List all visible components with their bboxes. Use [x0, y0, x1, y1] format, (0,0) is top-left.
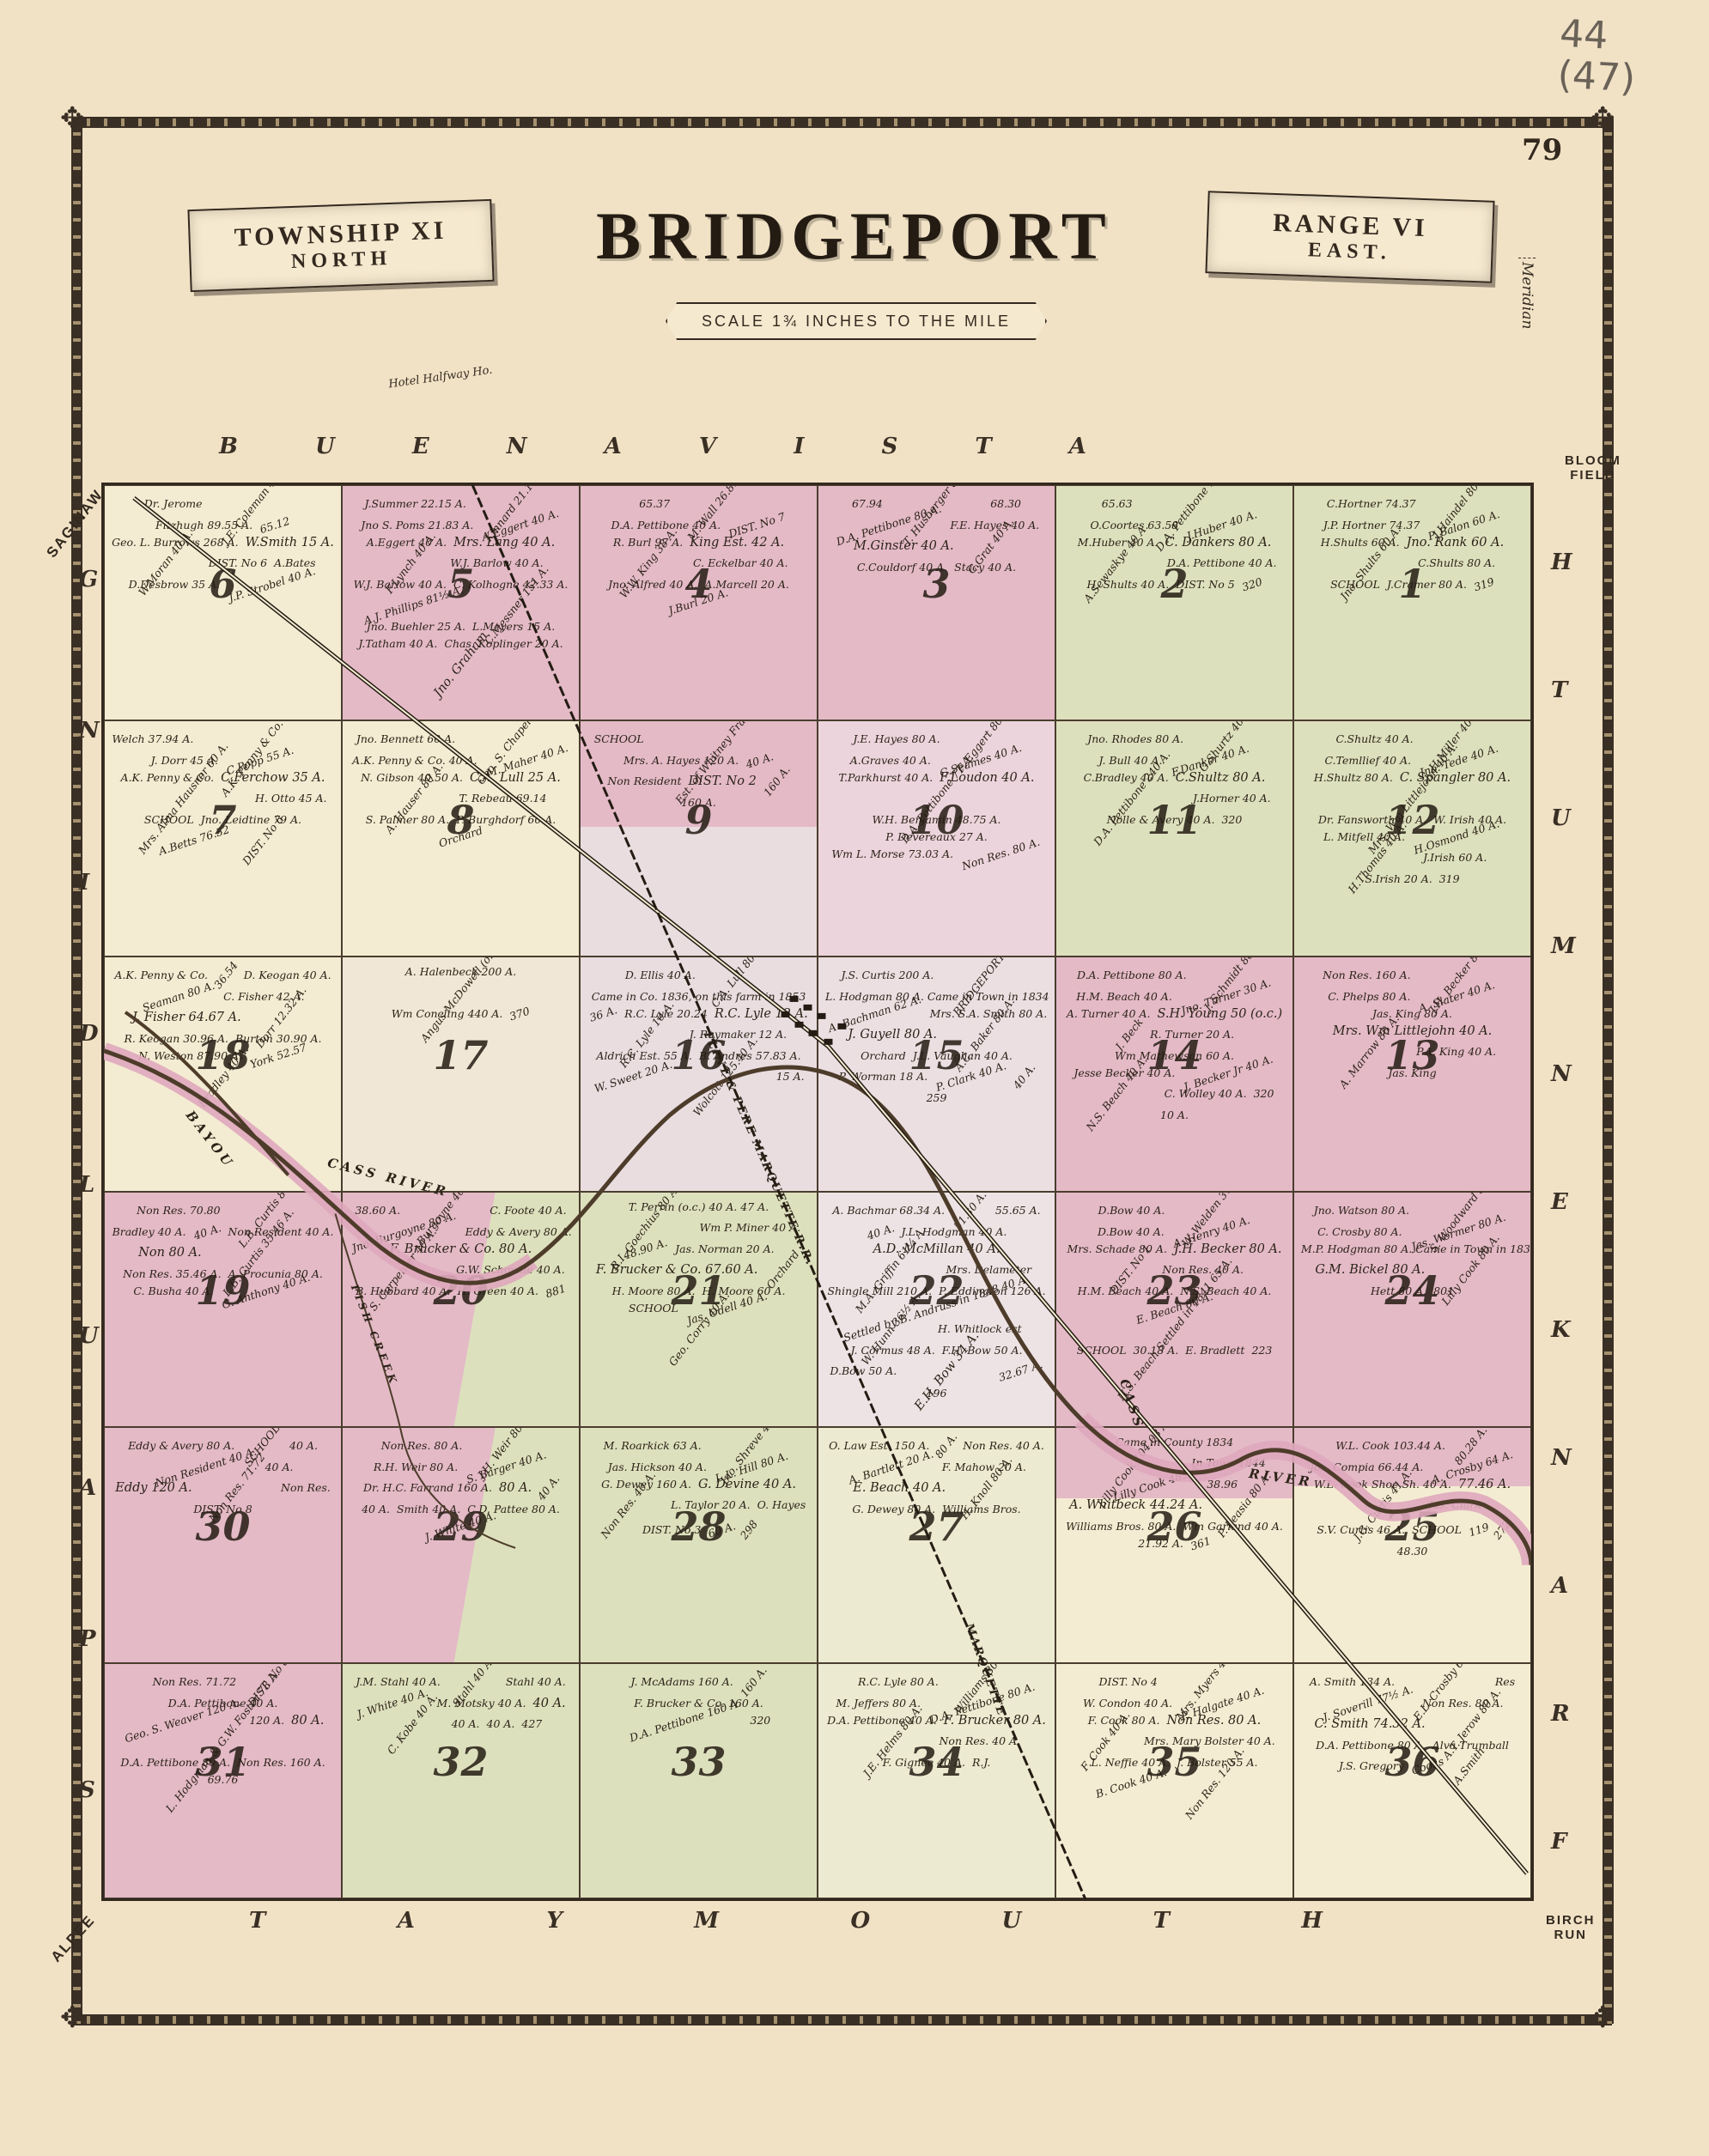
- parcel-label: S. Barger 40 A.: [465, 1448, 548, 1486]
- parcel-label: C.Shultz 40 A.: [1335, 732, 1413, 745]
- parcel-label: A.K. Penny & Co. 40 A.: [352, 754, 477, 767]
- section-number: 2: [1160, 561, 1188, 607]
- parcel-label: DIST. No 4: [1099, 1675, 1158, 1688]
- section-number: 8: [447, 797, 474, 843]
- parcel-label: O. Hayes: [757, 1498, 806, 1511]
- section-number: 21: [671, 1267, 726, 1314]
- adjoining-township-left: GNIDLUAPS: [79, 567, 100, 1803]
- hotel-note: Hotel Halfway Ho.: [388, 364, 494, 392]
- parcel-label: M. Motsky 40 A.: [437, 1697, 526, 1710]
- parcel-label: J.S. Curtis 200 A.: [841, 969, 934, 981]
- edge-letter: A: [79, 1475, 100, 1501]
- parcel-label: 32.67 A.: [997, 1357, 1044, 1384]
- parcel-label: Stahl 40 A.: [506, 1675, 566, 1688]
- parcel-label: Jno. Rhodes 80 A.: [1087, 732, 1183, 745]
- parcel-label: Res: [1495, 1675, 1515, 1688]
- parcel-label: W.L. Cook 103.44 A.: [1335, 1439, 1445, 1452]
- section-number: 13: [1384, 1032, 1439, 1078]
- parcel-label: A.K. Penny & Co.: [114, 969, 208, 981]
- parcel-label: 160 A.: [738, 1663, 769, 1698]
- parcel-label: Welch 37.94 A.: [112, 732, 193, 745]
- parcel-label: 320: [750, 1714, 770, 1727]
- parcel-label: Bradley 40 A.: [113, 1225, 186, 1238]
- parcel-label: J. McAdams 160 A.: [630, 1675, 733, 1688]
- parcel-label: D.Bow 40 A.: [1098, 1204, 1165, 1217]
- section-14: 14D.A. Pettibone 80 A.J. Schmidt 80 A.H.…: [1055, 957, 1293, 1192]
- edge-letter: T: [975, 434, 991, 459]
- section-23: 23D.Bow 40 A.W. Welden 37 A.D.Bow 40 A.A…: [1055, 1192, 1293, 1427]
- parcel-label: W.L. Cook Shoe Sh. 40 A.: [1314, 1478, 1451, 1491]
- parcel-label: C. Crosby 80 A.: [1317, 1225, 1402, 1238]
- edge-letter: N: [507, 434, 527, 459]
- parcel-label: 223: [1251, 1344, 1272, 1357]
- edge-letter: F: [1551, 1829, 1576, 1855]
- parcel-label: 40 A.: [865, 1221, 896, 1242]
- edge-letter: U: [1002, 1908, 1022, 1934]
- section-number: 34: [909, 1739, 964, 1785]
- parcel-label: 38.60 A.: [355, 1204, 400, 1217]
- parcel-label: J.Summer 22.15 A.: [364, 497, 465, 510]
- parcel-label: 40 A.: [487, 1717, 515, 1730]
- township-line2: NORTH: [291, 246, 392, 273]
- parcel-label: Jno. Rank 60 A.: [1407, 536, 1505, 550]
- section-number: 33: [671, 1739, 726, 1785]
- parcel-label: Wm P. Miner 40 A.: [699, 1221, 800, 1234]
- edge-letter: U: [79, 1323, 100, 1349]
- parcel-label: M. Jeffers 80 A.: [836, 1697, 921, 1710]
- section-3: 367.94T. Husberger 80 A.68.30D.A. Pettib…: [818, 485, 1055, 720]
- parcel-label: Came in County 1834: [1116, 1436, 1233, 1448]
- edge-letter: U: [315, 434, 335, 459]
- parcel-label: C.Messner 151 A.: [481, 563, 550, 647]
- section-24: 24Jno. Watson 80 A.S. Woodward 80 A.C. C…: [1293, 1192, 1531, 1427]
- atlas-page: { "page": {"handwritten": "44\n(47)", "p…: [0, 0, 1709, 2156]
- range-banner: RANGE VI EAST.: [1205, 191, 1494, 283]
- parcel-label: J. Beck: [1112, 1016, 1145, 1053]
- parcel-label: W. Condon 40 A.: [1083, 1697, 1172, 1710]
- parcel-label: 15 A.: [776, 1070, 805, 1083]
- section-1: 1C.Hortner 74.37J.Haindel 80.72J.P. Hort…: [1293, 485, 1531, 720]
- parcel-label: D. Ellis 40 A.: [625, 969, 696, 981]
- edge-letter: E: [1551, 1189, 1576, 1215]
- adjoining-township-bottom: TAYMOUTH: [249, 1908, 1323, 1934]
- frame-corner-ornament: ✥: [60, 2001, 85, 2035]
- section-number: 30: [195, 1503, 250, 1550]
- edge-letter: T: [1153, 1908, 1170, 1934]
- adjoining-township-top: BUENAVISTA: [219, 434, 1086, 459]
- parcel-label: Jno. Bennett 60 A.: [356, 732, 455, 745]
- edge-letter: V: [699, 434, 716, 459]
- parcel-label: 320: [1221, 813, 1242, 826]
- section-number: 14: [1146, 1032, 1201, 1078]
- edge-letter: M: [694, 1908, 719, 1934]
- parcel-label: C. Dankers 80 A.: [1165, 536, 1272, 550]
- parcel-label: E.L. Crosby 60 A.: [1411, 1663, 1480, 1723]
- section-number: 1: [1398, 561, 1426, 607]
- parcel-label: J.Horner 40 A.: [1193, 792, 1271, 805]
- parcel-label: 40 A.: [533, 1697, 566, 1710]
- parcel-label: Non Res. 40 A.: [963, 1439, 1044, 1452]
- parcel-label: D.Bow 50 A.: [830, 1364, 897, 1377]
- section-number: 19: [195, 1267, 250, 1314]
- parcel-label: 40 A.: [192, 1221, 222, 1242]
- parcel-label: Eddy 120 A.: [115, 1481, 192, 1495]
- edge-letter: S: [79, 1777, 100, 1803]
- parcel-label: 427: [521, 1717, 542, 1730]
- section-5: 5J.Summer 22.15 A.Kinnard 21.14 A.Jno S.…: [342, 485, 580, 720]
- edge-letter: A: [605, 434, 622, 459]
- section-12: 12C.Shultz 40 A.H.Miller 40 A.C.Temllief…: [1293, 720, 1531, 956]
- section-36: 36A. Smith 134 A.E.L. Crosby 60 A.ResJ. …: [1293, 1663, 1531, 1898]
- parcel-label: Came in Co. 1836, on this farm in 1853: [592, 990, 806, 1003]
- parcel-label: H.Shultz 80 A.: [1314, 771, 1393, 784]
- edge-letter: R: [1551, 1701, 1576, 1727]
- parcel-label: 40 A.: [265, 1461, 294, 1473]
- parcel-label: W. Sweet 20 A.: [593, 1057, 674, 1094]
- parcel-label: 119: [1467, 1521, 1490, 1540]
- map-title: BRIDGEPORT: [515, 197, 1194, 275]
- parcel-label: C. Foote 40 A.: [490, 1204, 566, 1217]
- parcel-label: N.S. Beach 40 A.: [1083, 1054, 1149, 1133]
- section-number: 29: [433, 1503, 488, 1550]
- parcel-label: J.P. Strobel 40 A.: [227, 564, 317, 604]
- range-line1: RANGE VI: [1273, 208, 1429, 242]
- section-number: 17: [433, 1032, 488, 1078]
- parcel-label: 65.37: [639, 497, 670, 510]
- section-number: 24: [1384, 1267, 1439, 1314]
- parcel-label: 68.30: [990, 497, 1021, 510]
- parcel-label: D. Keogan 40 A.: [244, 969, 331, 981]
- section-number: 6: [209, 561, 236, 607]
- parcel-label: 55.65 A.: [995, 1204, 1041, 1217]
- edge-letter: A: [1069, 434, 1086, 459]
- section-number: 31: [195, 1739, 250, 1785]
- parcel-label: 40 A.: [452, 1717, 480, 1730]
- parcel-label: 36 A.: [588, 1003, 619, 1023]
- parcel-label: C.Shults 80 A.: [1418, 556, 1495, 569]
- parcel-label: 80 A.: [291, 1714, 324, 1728]
- section-9: 9SCHOOLEst. of Whitney Fraser 320 A.Mrs.…: [580, 720, 818, 956]
- parcel-label: 40 A.: [289, 1439, 318, 1452]
- parcel-label: 272: [1490, 1518, 1513, 1542]
- parcel-label: C.Hortner 74.37: [1327, 497, 1416, 510]
- frame-top-border: [73, 118, 1612, 126]
- parcel-label: 40 A.: [362, 1503, 390, 1515]
- section-number: 11: [1146, 797, 1201, 843]
- section-number: 9: [684, 797, 712, 843]
- parcel-label: 80 A.: [933, 1430, 960, 1461]
- edge-letter: T: [1551, 677, 1576, 703]
- parcel-label: 370: [508, 1004, 532, 1023]
- section-number: 12: [1384, 797, 1439, 843]
- parcel-label: A.Sewaskye 40 A.: [1081, 521, 1151, 605]
- parcel-label: Orchard: [861, 1049, 906, 1062]
- meridian-label: Meridian: [1518, 258, 1536, 329]
- parcel-label: M. Roarkick 63 A.: [604, 1439, 702, 1452]
- section-number: 26: [1146, 1503, 1201, 1550]
- parcel-label: E. Beach 40 A.: [853, 1481, 946, 1495]
- parcel-label: Non Resident: [607, 774, 681, 787]
- section-number: 27: [909, 1503, 964, 1550]
- edge-letter: Y: [546, 1908, 563, 1934]
- frame-corner-ornament: ✥: [1590, 2001, 1615, 2035]
- parcel-label: 319: [1439, 872, 1460, 885]
- section-28: 28M. Roarkick 63 A.Jno. Shreve 40 A.Jas.…: [580, 1427, 818, 1662]
- parcel-label: T.Parkhurst 40 A.: [839, 771, 934, 784]
- section-20: 2038.60 A.Burgoyne 40 A.C. Foote 40 A.Jn…: [342, 1192, 580, 1427]
- parcel-label: O. Law Est. 150 A.: [829, 1439, 929, 1452]
- parcel-label: 259: [927, 1091, 947, 1104]
- parcel-label: 298: [738, 1518, 761, 1542]
- section-number: 36: [1384, 1739, 1439, 1785]
- edge-letter: M: [1551, 933, 1576, 959]
- edge-letter: N: [79, 718, 100, 744]
- section-26: 26Came in County 1834Lilly Cook 104.08 A…: [1055, 1427, 1293, 1662]
- parcel-label: SCHOOL: [594, 732, 644, 745]
- page-number: 79: [1522, 133, 1562, 167]
- section-number: 35: [1146, 1739, 1201, 1785]
- section-31: 31Non Res. 71.72DIST. No 8D.A. Pettibone…: [104, 1663, 342, 1898]
- parcel-label: S.H. Young 50 (o.c.): [1157, 1007, 1282, 1021]
- parcel-label: Jno S. Poms 21.83 A.: [361, 519, 473, 531]
- parcel-label: J.E. Hayes 80 A.: [853, 732, 940, 745]
- parcel-label: H. Whitlock est: [938, 1322, 1022, 1335]
- section-7: 7Welch 37.94 A.A.K. Penny & Co. 37.94 A.…: [104, 720, 342, 956]
- section-10: 10J.E. Hayes 80 A.F. Eggert 80 A.A.Grave…: [818, 720, 1055, 956]
- parcel-label: D.A. Pettibone 80 A.: [1077, 969, 1187, 981]
- parcel-label: 881: [544, 1282, 567, 1301]
- parcel-label: J.Tatham 40 A.: [358, 637, 437, 650]
- parcel-label: J.M. Stahl 40 A.: [356, 1675, 441, 1688]
- section-number: 20: [433, 1267, 488, 1314]
- parcel-label: 160 A.: [761, 763, 793, 799]
- parcel-label: M.Huber 40 A.: [1078, 536, 1159, 549]
- parcel-label: N. Gibson 40.50 A.: [361, 771, 463, 784]
- parcel-label: Non 80 A.: [138, 1246, 202, 1260]
- parcel-label: 38.96: [1207, 1478, 1238, 1491]
- parcel-label: 77.46 A.: [1458, 1478, 1511, 1491]
- parcel-label: R.C. Lyle 12 A.: [715, 1007, 808, 1021]
- parcel-label: A. Bachmar 68.34 A.: [832, 1204, 945, 1217]
- edge-letter: T: [249, 1908, 265, 1934]
- corner-label-bloomfield: BLOOM FIELD: [1565, 453, 1621, 483]
- frame-left-border: [73, 118, 81, 2024]
- scale-note: SCALE 1¾ INCHES TO THE MILE: [666, 302, 1047, 340]
- section-number: 28: [671, 1503, 726, 1550]
- parcel-label: Non Res. 70.80: [137, 1204, 220, 1217]
- parcel-label: 65.63: [1102, 497, 1133, 510]
- township-banner: TOWNSHIP XI NORTH: [187, 199, 494, 292]
- parcel-label: Non Res. 71.72: [153, 1675, 236, 1688]
- section-number: 7: [209, 797, 236, 843]
- parcel-label: SCHOOL: [1077, 1344, 1127, 1357]
- parcel-label: L.Meyers 15 A.: [472, 620, 555, 633]
- edge-letter: L: [79, 1172, 100, 1198]
- corner-label-birch-run: BIRCH RUN: [1546, 1913, 1596, 1942]
- parcel-label: Non Res. 160 A.: [1323, 969, 1411, 981]
- parcel-label: Eddy & Avery 80 A.: [128, 1439, 234, 1452]
- edge-letter: A: [1551, 1573, 1576, 1599]
- parcel-label: 67.94: [852, 497, 883, 510]
- edge-letter: N: [1551, 1061, 1576, 1087]
- section-number: 10: [909, 797, 964, 843]
- section-11: 11Jno. Rhodes 80 A.G.Shurtz 40 A.J. Bull…: [1055, 720, 1293, 956]
- parcel-label: W.Smith 15 A.: [246, 536, 334, 550]
- parcel-label: Non Res.: [281, 1481, 331, 1494]
- parcel-label: R.J.: [972, 1756, 990, 1769]
- parcel-label: R.C. Lyle 80 A.: [858, 1675, 939, 1688]
- edge-letter: D: [79, 1021, 100, 1047]
- parcel-label: 40 A.: [1011, 1061, 1038, 1091]
- section-number: 3: [922, 561, 950, 607]
- edge-letter: O: [850, 1908, 870, 1934]
- section-8: 8Jno. Bennett 60 A.Geo. S. Chapel 58 A.A…: [342, 720, 580, 956]
- handwritten-plate-number: 44 (47): [1557, 14, 1639, 100]
- parcel-label: 65.12: [258, 514, 292, 536]
- parcel-label: 120 A.: [249, 1714, 284, 1727]
- section-18: 18A.K. Penny & Co.36.54D. Keogan 40 A.Se…: [104, 957, 342, 1192]
- section-number: 4: [684, 561, 712, 607]
- section-22: 22A. Bachmar 68.34 A.51.30 A.55.65 A.40 …: [818, 1192, 1055, 1427]
- parcel-label: Jas. Norman 20 A.: [675, 1242, 774, 1255]
- section-25: 25W.L. Cook 103.44 A.80.28 A.Jos. Compia…: [1293, 1427, 1531, 1662]
- sections-grid: 6Dr. JeromeJ.E. Coleman 40 A.Fitzhugh 89…: [104, 485, 1531, 1898]
- edge-letter: P: [79, 1626, 100, 1652]
- edge-letter: S: [881, 434, 897, 459]
- parcel-label: 320: [1254, 1087, 1274, 1100]
- parcel-label: Non Res. 80 A.: [381, 1439, 463, 1452]
- parcel-label: 36.54: [211, 958, 240, 990]
- section-number: 22: [909, 1267, 964, 1314]
- parcel-label: C. Wolley 40 A.: [1165, 1087, 1247, 1100]
- parcel-label: Seaman 80 A.: [141, 978, 216, 1013]
- parcel-label: D.Bow 40 A.: [1098, 1225, 1165, 1238]
- edge-letter: I: [79, 870, 100, 896]
- parcel-label: 320: [1240, 575, 1263, 594]
- parcel-label: In Town 1844: [1191, 1456, 1265, 1469]
- section-number: 16: [671, 1032, 726, 1078]
- frame-corner-ornament: ✥: [60, 101, 85, 136]
- adjoining-township-right: HTUMNEKNARF: [1551, 550, 1576, 1855]
- parcel-label: J.Irish 60 A.: [1423, 851, 1487, 864]
- section-13: 13Non Res. 160 A.J.H. Becker 80 A.C. Phe…: [1293, 957, 1531, 1192]
- parcel-label: 40 A.: [745, 750, 775, 771]
- frame-bottom-border: [73, 2016, 1612, 2024]
- parcel-label: R.H. Weir 80 A.: [374, 1461, 458, 1473]
- parcel-label: Chas. Koplinger 20 A.: [444, 637, 563, 650]
- parcel-label: G. Devine 40 A.: [698, 1478, 796, 1491]
- parcel-label: Eddy & Avery 80 A.: [465, 1225, 572, 1238]
- edge-letter: E: [412, 434, 429, 459]
- section-4: 465.37M. Wall 26.81 A.D.A. Pettibone 40 …: [580, 485, 818, 720]
- edge-letter: U: [1551, 805, 1576, 831]
- parcel-label: E.H. Bow 34 A.: [912, 1329, 982, 1413]
- parcel-label: C. Phelps 80 A.: [1328, 990, 1410, 1003]
- section-19: 19Non Res. 70.80L.B. Curtis 80 A.Bradley…: [104, 1192, 342, 1427]
- parcel-label: Dr. Jerome: [144, 497, 203, 510]
- section-15: 15J.S. Curtis 200 A.BRIDGEPORT P.O.L. Ho…: [818, 957, 1055, 1192]
- edge-letter: I: [794, 434, 804, 459]
- parcel-label: Mrs. Lang 40 A.: [453, 536, 555, 550]
- frame-corner-ornament: ✥: [1590, 101, 1615, 136]
- section-2: 265.63D.A. Pettibone 160 A.O.Coortes 63.…: [1055, 485, 1293, 720]
- parcel-label: Jas. Hickson 40 A.: [608, 1461, 707, 1473]
- parcel-label: Jno. Watson 80 A.: [1314, 1204, 1409, 1217]
- section-29: 29Non Res. 80 A.J.H. Weir 80 A.R.H. Weir…: [342, 1427, 580, 1662]
- parcel-label: A. Smith 134 A.: [1310, 1675, 1395, 1688]
- parcel-label: Wm L. Morse 73.03 A.: [831, 847, 953, 860]
- township-line1: TOWNSHIP XI: [234, 216, 447, 252]
- section-33: 33J. McAdams 160 A.160 A.F. Brucker & Co…: [580, 1663, 818, 1898]
- section-21: 21T. Perrin (o.c.) 40 A. 47 A.R.I. Goech…: [580, 1192, 818, 1427]
- parcel-label: 10 A.: [1160, 1108, 1189, 1121]
- section-34: 34R.C. Lyle 80 A.Williams 80 A.M. Jeffer…: [818, 1663, 1055, 1898]
- edge-letter: H: [1301, 1908, 1323, 1934]
- parcel-label: C.Temllief 40 A.: [1325, 754, 1412, 767]
- parcel-label: A. Halenbeck 200 A.: [405, 965, 517, 978]
- parcel-label: H.M. Beach 40 A.: [1076, 990, 1172, 1003]
- edge-letter: N: [1551, 1445, 1576, 1471]
- parcel-label: A.D. McMillan 40 A.: [873, 1242, 1000, 1256]
- edge-letter: G: [79, 567, 100, 592]
- range-line2: EAST.: [1307, 239, 1391, 264]
- parcel-label: S.Irish 20 A.: [1365, 872, 1432, 885]
- edge-letter: K: [1551, 1317, 1576, 1343]
- section-number: 5: [447, 561, 474, 607]
- edge-letter: A: [398, 1908, 415, 1934]
- parcel-label: J.P. Hortner 74.37: [1323, 519, 1420, 531]
- section-number: 25: [1384, 1503, 1439, 1550]
- section-6: 6Dr. JeromeJ.E. Coleman 40 A.Fitzhugh 89…: [104, 485, 342, 720]
- section-17: 17A. Halenbeck 200 A.Angus McDowell (o.c…: [342, 957, 580, 1192]
- edge-letter: H: [1551, 550, 1576, 575]
- parcel-label: F. Brucker & Co. 160 A.: [634, 1697, 763, 1710]
- edge-letter: B: [219, 434, 238, 459]
- parcel-label: E. Bradlett: [1185, 1344, 1244, 1357]
- section-number: 23: [1146, 1267, 1201, 1314]
- parcel-label: 80 A.: [499, 1481, 532, 1495]
- parcel-label: 319: [1472, 575, 1495, 594]
- parcel-label: H. Otto 45 A.: [255, 792, 327, 805]
- section-32: 32J.M. Stahl 40 A.Stahl 40 A.Stahl 40 A.…: [342, 1663, 580, 1898]
- section-number: 15: [909, 1032, 964, 1078]
- section-number: 32: [433, 1739, 488, 1785]
- section-27: 27O. Law Est. 150 A.80 A.Non Res. 40 A.A…: [818, 1427, 1055, 1662]
- parcel-label: 40 A.: [535, 1473, 563, 1503]
- section-30: 30Eddy & Avery 80 A.SCHOOL40 A.Non Resid…: [104, 1427, 342, 1662]
- township-map: 6Dr. JeromeJ.E. Coleman 40 A.Fitzhugh 89…: [101, 483, 1534, 1901]
- section-16: 16D. Ellis 40 A.C.A. Lull 80 A.Came in C…: [580, 957, 818, 1192]
- section-35: 35DIST. No 4Mrs. Myers 40 A.W. Condon 40…: [1055, 1663, 1293, 1898]
- section-number: 18: [195, 1032, 250, 1078]
- frame-right-border: [1604, 118, 1612, 2024]
- parcel-label: A.Graves 40 A.: [850, 754, 931, 767]
